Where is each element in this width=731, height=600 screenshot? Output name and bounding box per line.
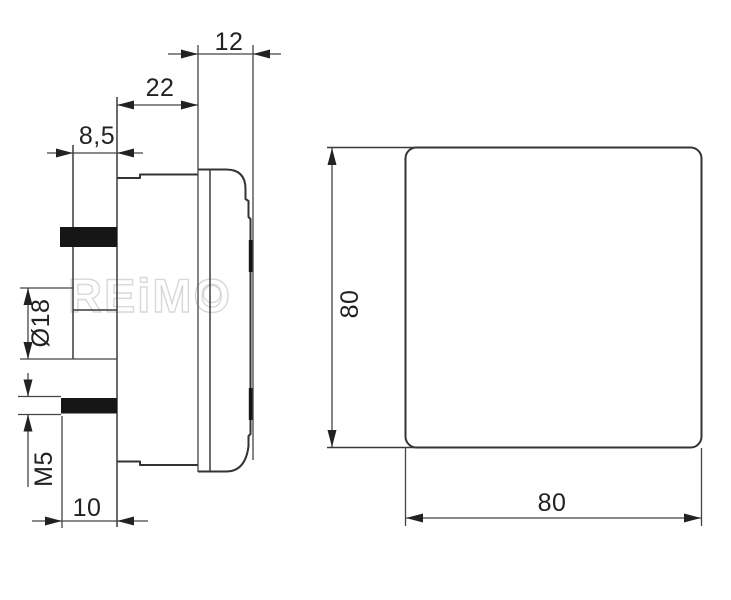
dimension-front-height: 80 bbox=[327, 148, 417, 448]
front-face-plate bbox=[406, 148, 702, 448]
dimension-body-depth: 22 bbox=[117, 74, 198, 110]
drawing-page: REiMO 12 bbox=[0, 0, 731, 600]
arrowhead bbox=[117, 517, 134, 526]
arrowhead bbox=[45, 517, 62, 526]
front-view: 80 80 bbox=[327, 148, 702, 527]
front-view-outline bbox=[406, 148, 702, 448]
dimension-label: 80 bbox=[538, 489, 567, 517]
dimension-label: 80 bbox=[336, 290, 364, 319]
dimension-label: M5 bbox=[30, 451, 58, 487]
reimo-watermark: REiMO bbox=[68, 269, 232, 322]
dimension-label: Ø18 bbox=[27, 299, 55, 348]
dimension-rear-tube-length: 8,5 bbox=[47, 122, 143, 158]
watermark-text: REiMO bbox=[68, 269, 232, 322]
dimension-front-width: 80 bbox=[406, 448, 702, 526]
arrowhead bbox=[56, 149, 73, 158]
bezel-top-edge bbox=[198, 170, 251, 241]
arrowhead bbox=[24, 380, 33, 397]
body-bottom-edge bbox=[117, 462, 198, 466]
arrowhead bbox=[181, 101, 198, 110]
dimension-bezel-depth: 12 bbox=[168, 28, 281, 472]
arrowhead bbox=[253, 50, 270, 59]
arrowhead bbox=[684, 514, 701, 523]
dimension-label: 22 bbox=[146, 74, 175, 102]
gauge-dimension-drawing: REiMO 12 bbox=[0, 0, 731, 600]
arrowhead bbox=[117, 149, 134, 158]
dimension-label: 12 bbox=[215, 28, 244, 56]
dimension-stud-thread: M5 bbox=[18, 373, 61, 487]
arrowhead bbox=[117, 101, 134, 110]
arrowhead bbox=[24, 415, 33, 432]
arrowhead bbox=[181, 50, 198, 59]
dimension-label: 8,5 bbox=[79, 122, 115, 150]
body-top-edge bbox=[117, 175, 198, 179]
m5-threaded-stud bbox=[61, 398, 117, 414]
bezel-bottom-edge bbox=[198, 420, 251, 472]
dimension-label: 10 bbox=[73, 494, 102, 522]
arrowhead bbox=[406, 514, 423, 523]
rear-seal-band bbox=[60, 227, 117, 247]
arrowhead bbox=[328, 148, 337, 165]
arrowhead bbox=[328, 430, 337, 447]
